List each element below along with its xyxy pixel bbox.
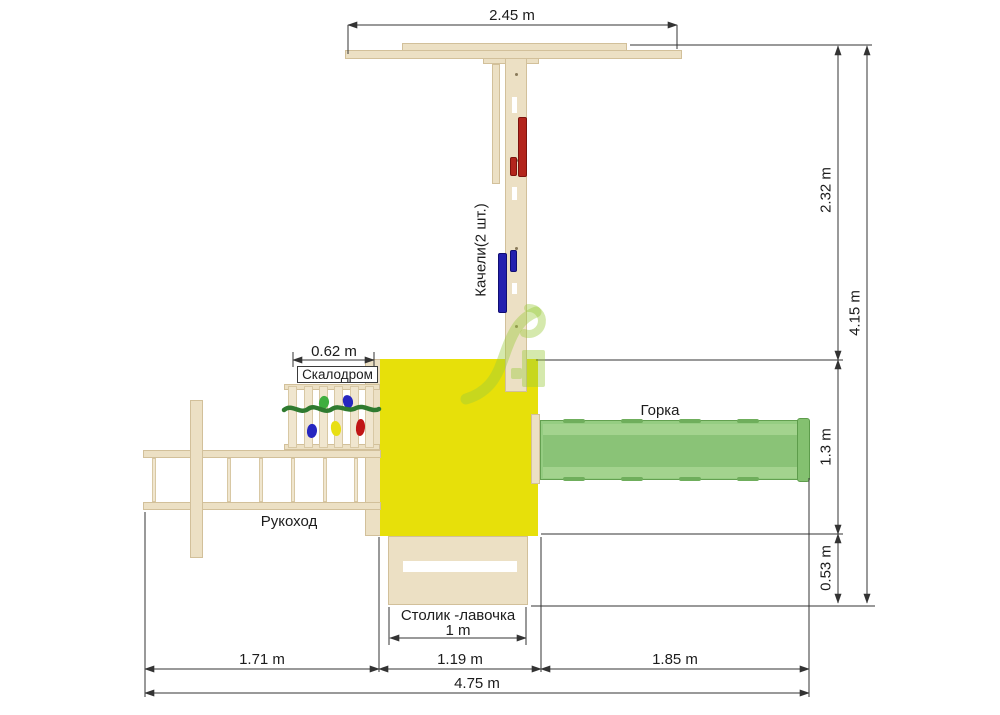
dim-label-platform-depth: 1.3 m [818, 428, 835, 466]
dim-label-table-width: 1 m [445, 622, 470, 639]
dim-label-total-width: 4.75 m [454, 675, 500, 692]
dim-label-monkey-bars-length: 1.71 m [239, 651, 285, 668]
label-slide: Горка [640, 402, 679, 419]
dim-label-climbing-wall-width: 0.62 m [311, 343, 357, 360]
playground-plan-diagram: 2.45 m 2.32 m 4.15 m 1.3 m 0.53 m Качели… [0, 0, 1000, 715]
dim-label-beam-width: 2.45 m [489, 7, 535, 24]
labels-layer: 2.45 m 2.32 m 4.15 m 1.3 m 0.53 m Качели… [0, 0, 1000, 715]
dim-label-table-depth: 0.53 m [818, 545, 835, 591]
dim-label-total-height: 4.15 m [847, 290, 864, 336]
label-climbing-wall: Скалодром [297, 366, 378, 383]
dim-label-platform-width: 1.19 m [437, 651, 483, 668]
dim-label-upper-height: 2.32 m [818, 167, 835, 213]
dim-label-slide-length: 1.85 m [652, 651, 698, 668]
label-swings: Качели(2 шт.) [473, 203, 490, 296]
label-monkey-bars: Рукоход [261, 513, 318, 530]
